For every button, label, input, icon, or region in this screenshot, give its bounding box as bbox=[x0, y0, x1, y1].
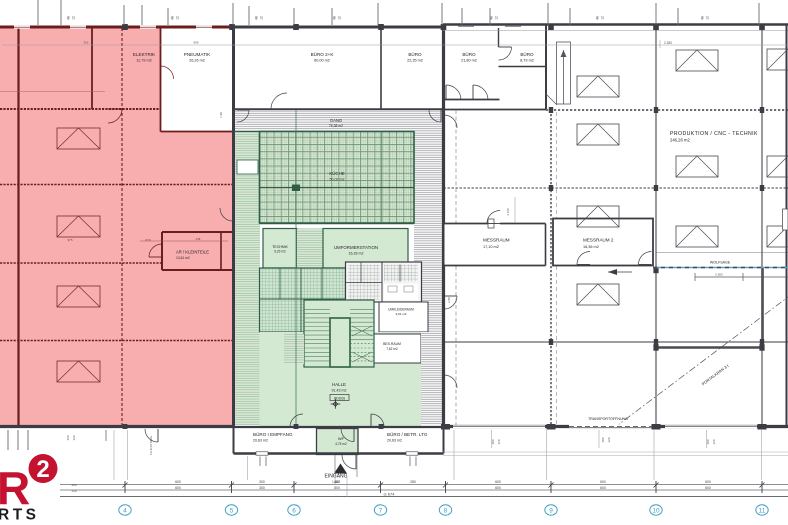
svg-text:UMFORMERSTATION: UMFORMERSTATION bbox=[334, 245, 378, 250]
svg-text:48: 48 bbox=[333, 16, 337, 20]
svg-text:120: 120 bbox=[712, 439, 716, 444]
svg-text:UMKLEIDERAUM: UMKLEIDERAUM bbox=[388, 308, 414, 312]
svg-text:300: 300 bbox=[259, 486, 265, 490]
svg-text:BÜRO / BETR. LTG: BÜRO / BETR. LTG bbox=[387, 431, 428, 437]
svg-text:50,02 m2: 50,02 m2 bbox=[330, 178, 345, 182]
svg-text:5,29 m2: 5,29 m2 bbox=[274, 250, 286, 254]
svg-text:20,63 m2: 20,63 m2 bbox=[387, 439, 402, 443]
svg-text:4: 4 bbox=[123, 507, 127, 514]
svg-text:8: 8 bbox=[444, 507, 448, 514]
svg-text:600: 600 bbox=[600, 486, 606, 490]
svg-text:BÜRO 2+K: BÜRO 2+K bbox=[311, 51, 335, 57]
svg-text:12: 12 bbox=[495, 16, 499, 20]
svg-text:600: 600 bbox=[600, 480, 606, 484]
svg-text:2.500: 2.500 bbox=[715, 273, 723, 277]
svg-text:12: 12 bbox=[338, 16, 342, 20]
svg-text:48: 48 bbox=[255, 16, 259, 20]
svg-text:1.98: 1.98 bbox=[219, 112, 223, 118]
svg-text:WOLFSÄGE: WOLFSÄGE bbox=[710, 261, 731, 265]
svg-text:480: 480 bbox=[71, 483, 76, 487]
svg-text:600: 600 bbox=[495, 480, 501, 484]
svg-text:16,28 m2: 16,28 m2 bbox=[349, 252, 364, 256]
svg-text:2.280: 2.280 bbox=[664, 41, 672, 45]
svg-text:12: 12 bbox=[601, 16, 605, 20]
svg-text:8,79 m2: 8,79 m2 bbox=[520, 59, 534, 63]
svg-text:305: 305 bbox=[83, 41, 88, 45]
svg-text:10: 10 bbox=[652, 507, 660, 514]
svg-text:BÜRO: BÜRO bbox=[520, 51, 534, 57]
svg-text:91,43 m2: 91,43 m2 bbox=[332, 389, 347, 393]
svg-text:48: 48 bbox=[701, 16, 705, 20]
svg-text:120: 120 bbox=[607, 437, 611, 442]
svg-text:AR / KLEINTEILE: AR / KLEINTEILE bbox=[176, 250, 209, 255]
svg-text:246,26 m2: 246,26 m2 bbox=[670, 138, 690, 143]
svg-text:600: 600 bbox=[705, 480, 711, 484]
svg-text:MESSRAUM 2: MESSRAUM 2 bbox=[583, 238, 614, 243]
svg-text:600: 600 bbox=[495, 486, 501, 490]
svg-text:7: 7 bbox=[379, 507, 383, 514]
svg-text:76,38 m2: 76,38 m2 bbox=[329, 124, 343, 128]
svg-text:BÜRO: BÜRO bbox=[462, 51, 476, 57]
svg-text:449: 449 bbox=[71, 489, 76, 493]
svg-text:PRODUKTION / CNC - TECHNIK: PRODUKTION / CNC - TECHNIK bbox=[670, 131, 758, 137]
svg-text:13,61 m2: 13,61 m2 bbox=[176, 256, 190, 260]
svg-text:9,91 m2: 9,91 m2 bbox=[396, 312, 407, 316]
svg-text:60,00 m2: 60,00 m2 bbox=[314, 59, 330, 63]
svg-text:G 674: G 674 bbox=[384, 492, 396, 497]
svg-text:120: 120 bbox=[72, 435, 76, 440]
svg-text:ELEKTRIK: ELEKTRIK bbox=[133, 52, 156, 57]
svg-text:12: 12 bbox=[260, 16, 264, 20]
svg-text:480: 480 bbox=[334, 480, 340, 484]
svg-text:FLUCHTWEG: FLUCHTWEG bbox=[149, 435, 153, 455]
svg-text:670: 670 bbox=[145, 238, 150, 242]
svg-text:BÜRO: BÜRO bbox=[408, 51, 422, 57]
svg-text:EINGANG: EINGANG bbox=[324, 474, 347, 480]
svg-text:17,10 m2: 17,10 m2 bbox=[483, 245, 499, 249]
svg-text:460: 460 bbox=[66, 435, 70, 440]
svg-text:48: 48 bbox=[490, 16, 494, 20]
svg-text:2.88: 2.88 bbox=[447, 297, 451, 303]
svg-text:48: 48 bbox=[171, 16, 175, 20]
svg-text:600: 600 bbox=[175, 486, 181, 490]
svg-text:48: 48 bbox=[596, 16, 600, 20]
svg-text:MESSRAUM: MESSRAUM bbox=[483, 238, 510, 243]
svg-text:480: 480 bbox=[601, 437, 605, 442]
svg-text:5: 5 bbox=[230, 507, 234, 514]
svg-text:26,26 m2: 26,26 m2 bbox=[189, 59, 205, 63]
svg-text:800: 800 bbox=[334, 486, 340, 490]
svg-text:11: 11 bbox=[759, 507, 766, 514]
svg-text:BES.RAUM: BES.RAUM bbox=[383, 342, 401, 346]
svg-text:BÜRO I EMPFANG: BÜRO I EMPFANG bbox=[253, 431, 293, 437]
svg-text:KÜCHE: KÜCHE bbox=[329, 171, 344, 176]
svg-text:11,79 m2: 11,79 m2 bbox=[136, 59, 152, 63]
svg-text:975: 975 bbox=[67, 238, 72, 242]
svg-text:9: 9 bbox=[549, 507, 553, 514]
svg-text:966: 966 bbox=[193, 41, 198, 45]
svg-text:48: 48 bbox=[67, 16, 71, 20]
svg-text:TECHNIK: TECHNIK bbox=[272, 245, 288, 249]
svg-text:480: 480 bbox=[491, 439, 495, 444]
svg-text:HALLE: HALLE bbox=[332, 382, 346, 387]
svg-text:120: 120 bbox=[497, 439, 501, 444]
svg-text:2.150: 2.150 bbox=[506, 208, 510, 216]
svg-text:600: 600 bbox=[705, 486, 711, 490]
svg-text:480: 480 bbox=[706, 439, 710, 444]
svg-text:21,80 m2: 21,80 m2 bbox=[461, 59, 477, 63]
svg-text:TRANSPORTÖFFNUNG: TRANSPORTÖFFNUNG bbox=[588, 417, 628, 421]
svg-text:248: 248 bbox=[196, 237, 201, 241]
svg-text:600: 600 bbox=[175, 480, 181, 484]
svg-text:22,35 m2: 22,35 m2 bbox=[407, 59, 423, 63]
svg-text:20,63 m2: 20,63 m2 bbox=[253, 439, 268, 443]
svg-text:280: 280 bbox=[410, 480, 416, 484]
svg-text:16,36 m2: 16,36 m2 bbox=[583, 245, 599, 249]
svg-text:4,75 m2: 4,75 m2 bbox=[335, 442, 347, 446]
svg-text:7,62 m2: 7,62 m2 bbox=[386, 347, 398, 351]
svg-text:WF: WF bbox=[338, 436, 345, 441]
svg-text:12: 12 bbox=[72, 16, 76, 20]
svg-text:6: 6 bbox=[292, 507, 296, 514]
svg-text:PNEUMATIK: PNEUMATIK bbox=[184, 52, 211, 57]
svg-text:RTS: RTS bbox=[0, 507, 40, 524]
svg-text:12: 12 bbox=[706, 16, 710, 20]
svg-text:300: 300 bbox=[259, 480, 265, 484]
svg-text:12: 12 bbox=[176, 16, 180, 20]
svg-text:GANG: GANG bbox=[330, 118, 342, 123]
svg-text:2: 2 bbox=[36, 456, 49, 483]
